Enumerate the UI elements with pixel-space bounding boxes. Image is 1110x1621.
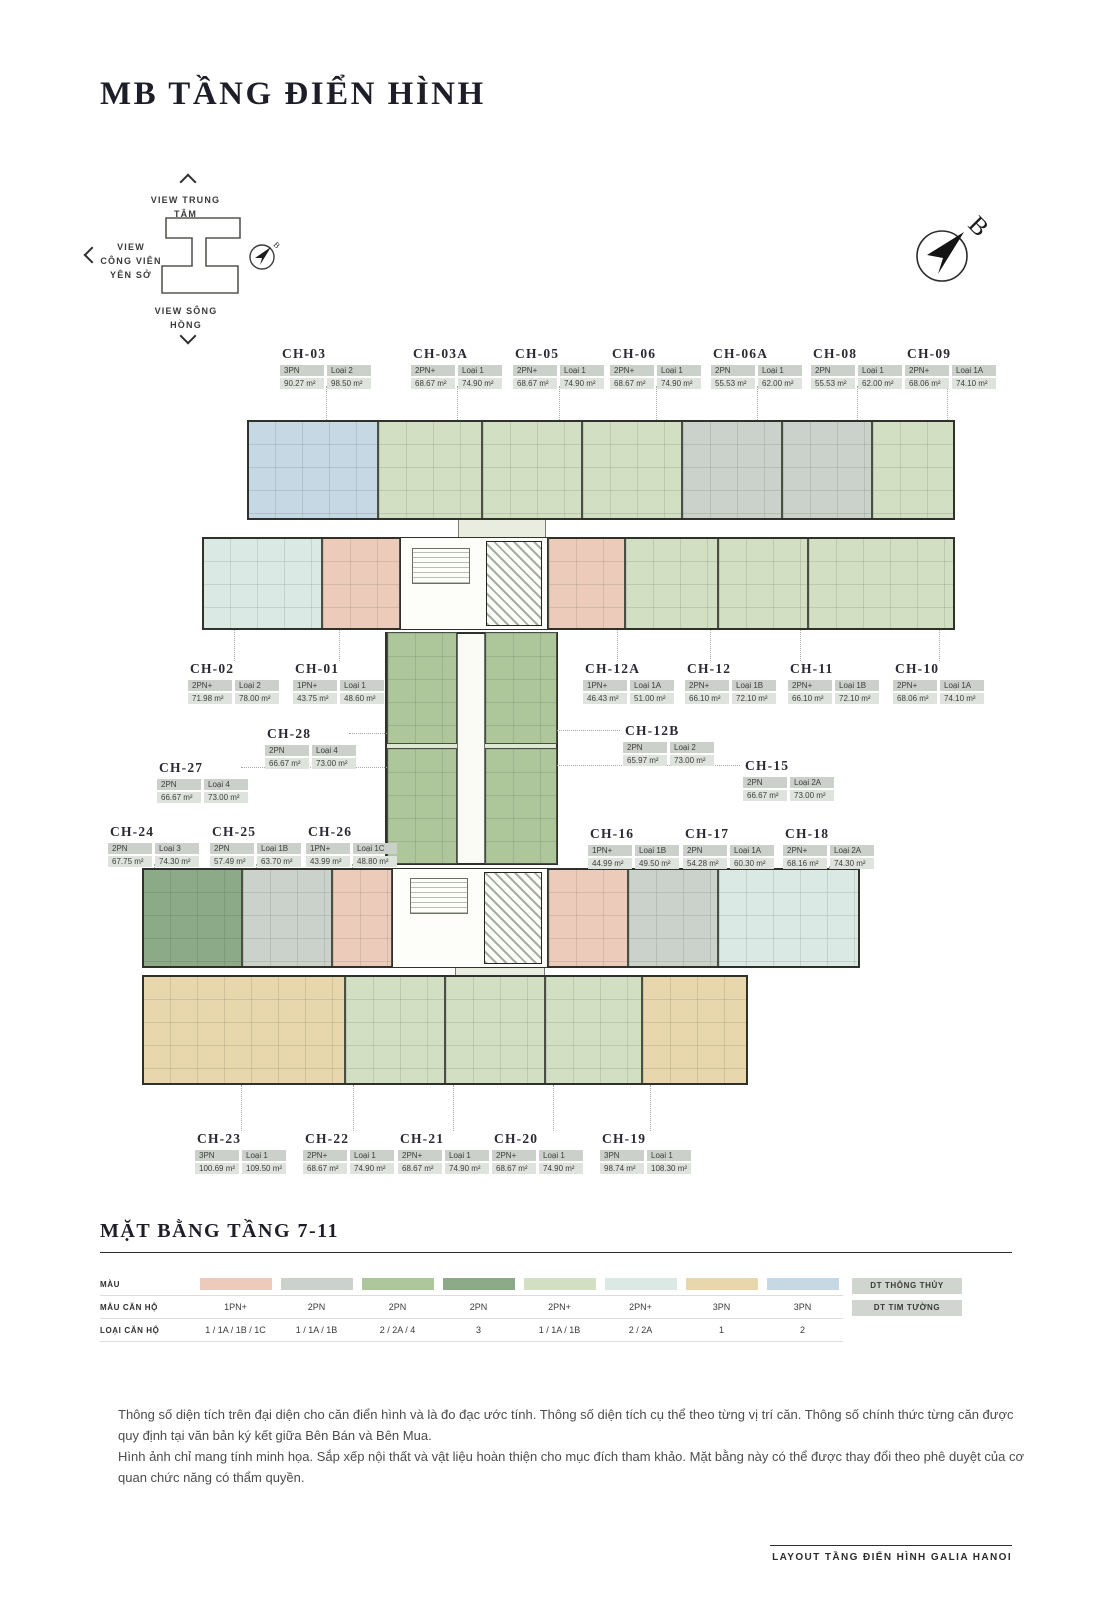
central-corridor — [457, 634, 485, 863]
unit-area-gross: 78.00 m² — [235, 693, 279, 704]
unit-id: CH-11 — [790, 661, 880, 677]
color-swatch-icon — [200, 1278, 272, 1290]
unit-area-gross: 48.60 m² — [340, 693, 384, 704]
unit-id: CH-03 — [282, 346, 372, 362]
unit-bedrooms: 2PN — [683, 845, 727, 856]
unit-info-table: 2PNLoại 367.75 m²74.30 m² — [108, 843, 200, 867]
unit-bedrooms: 2PN — [108, 843, 152, 854]
unit-label-CH-27: CH-272PNLoại 466.67 m²73.00 m² — [157, 760, 249, 803]
unit-label-CH-03A: CH-03A2PN+Loại 168.67 m²74.90 m² — [411, 346, 503, 389]
unit-type: Loại 1 — [758, 365, 802, 376]
unit-area-gross: 73.00 m² — [204, 792, 248, 803]
unit-id: CH-28 — [267, 726, 357, 742]
legend-row-label: MÀU — [100, 1280, 195, 1289]
leader-line — [656, 386, 657, 420]
unit-bedrooms: 2PN+ — [492, 1150, 536, 1161]
unit-label-CH-15: CH-152PNLoại 2A66.67 m²73.00 m² — [743, 758, 835, 801]
unit-info-table: 1PN+Loại 1C43.99 m²48.80 m² — [306, 843, 398, 867]
color-swatch-icon — [362, 1278, 434, 1290]
unit-id: CH-15 — [745, 758, 835, 774]
unit-id: CH-09 — [907, 346, 997, 362]
legend-loai-values: 1 / 1A / 1B — [276, 1325, 357, 1335]
unit-id: CH-10 — [895, 661, 985, 677]
unit-id: CH-24 — [110, 824, 200, 840]
unit-info-table: 2PNLoại 1A54.28 m²60.30 m² — [683, 845, 775, 869]
unit-id: CH-12B — [625, 723, 715, 739]
unit-bedrooms: 2PN — [210, 843, 254, 854]
unit-area-gross: 63.70 m² — [257, 856, 301, 867]
unit-area-clear: 68.16 m² — [783, 858, 827, 869]
unit-info-table: 2PN+Loại 168.67 m²74.90 m² — [492, 1150, 584, 1174]
unit-type: Loại 1 — [657, 365, 701, 376]
unit-info-table: 3PNLoại 198.74 m²108.30 m² — [600, 1150, 692, 1174]
legend-bedroom-type: 2PN+ — [600, 1302, 681, 1312]
leader-line — [617, 630, 618, 661]
unit-label-CH-06: CH-062PN+Loại 168.67 m²74.90 m² — [610, 346, 702, 389]
unit-id: CH-12A — [585, 661, 675, 677]
unit-type: Loại 1 — [340, 680, 384, 691]
unit-bedrooms: 2PN+ — [513, 365, 557, 376]
unit-area-gross: 74.10 m² — [940, 693, 984, 704]
unit-area-clear: 68.67 m² — [492, 1163, 536, 1174]
unit-type: Loại 3 — [155, 843, 199, 854]
unit-area-gross: 108.30 m² — [647, 1163, 691, 1174]
unit-id: CH-02 — [190, 661, 280, 677]
unit-label-CH-28: CH-282PNLoại 466.67 m²73.00 m² — [265, 726, 357, 769]
unit-label-CH-03: CH-033PNLoại 290.27 m²98.50 m² — [280, 346, 372, 389]
unit-type: Loại 1 — [445, 1150, 489, 1161]
unit-area-clear: 54.28 m² — [683, 858, 727, 869]
unit-info-table: 2PN+Loại 168.67 m²74.90 m² — [303, 1150, 395, 1174]
unit-area-gross: 73.00 m² — [670, 755, 714, 766]
unit-bedrooms: 1PN+ — [306, 843, 350, 854]
wing-outline — [142, 975, 748, 1085]
leader-line — [457, 386, 458, 420]
unit-id: CH-12 — [687, 661, 777, 677]
unit-id: CH-25 — [212, 824, 302, 840]
unit-info-table: 1PN+Loại 1B44.99 m²49.50 m² — [588, 845, 680, 869]
unit-label-CH-16: CH-161PN+Loại 1B44.99 m²49.50 m² — [588, 826, 680, 869]
footer-label: LAYOUT TẦNG ĐIỂN HÌNH GALIA HANOI — [640, 1552, 1012, 1563]
legend-title: MẶT BẰNG TẦNG 7-11 — [100, 1220, 1012, 1243]
unit-label-CH-17: CH-172PNLoại 1A54.28 m²60.30 m² — [683, 826, 775, 869]
unit-id: CH-08 — [813, 346, 903, 362]
legend-loai-values: 1 — [681, 1325, 762, 1335]
unit-area-gross: 72.10 m² — [732, 693, 776, 704]
unit-id: CH-05 — [515, 346, 605, 362]
unit-bedrooms: 1PN+ — [293, 680, 337, 691]
unit-label-CH-12: CH-122PN+Loại 1B66.10 m²72.10 m² — [685, 661, 777, 704]
unit-type: Loại 2 — [235, 680, 279, 691]
unit-info-table: 2PN+Loại 1A68.06 m²74.10 m² — [893, 680, 985, 704]
unit-bedrooms: 2PN+ — [411, 365, 455, 376]
unit-bedrooms: 2PN — [157, 779, 201, 790]
unit-area-clear: 46.43 m² — [583, 693, 627, 704]
leader-line — [800, 630, 801, 661]
unit-id: CH-21 — [400, 1131, 490, 1147]
unit-id: CH-16 — [590, 826, 680, 842]
unit-label-CH-11: CH-112PN+Loại 1B66.10 m²72.10 m² — [788, 661, 880, 704]
unit-area-gross: 72.10 m² — [835, 693, 879, 704]
unit-area-clear: 68.67 m² — [411, 378, 455, 389]
unit-bedrooms: 2PN+ — [610, 365, 654, 376]
unit-type: Loại 1 — [350, 1150, 394, 1161]
unit-id: CH-18 — [785, 826, 875, 842]
unit-label-CH-20: CH-202PN+Loại 168.67 m²74.90 m² — [492, 1131, 584, 1174]
leader-line — [559, 386, 560, 420]
legend-loai-values: 1 / 1A / 1B — [519, 1325, 600, 1335]
unit-type: Loại 1 — [560, 365, 604, 376]
unit-area-clear: 98.74 m² — [600, 1163, 644, 1174]
legend-row-color: MÀU — [100, 1273, 843, 1296]
unit-info-table: 3PNLoại 290.27 m²98.50 m² — [280, 365, 372, 389]
unit-id: CH-22 — [305, 1131, 395, 1147]
area-clear-badge: DT THÔNG THỦY — [852, 1278, 962, 1294]
unit-area-gross: 49.50 m² — [635, 858, 679, 869]
color-swatch-icon — [443, 1278, 515, 1290]
disclaimer-paragraph-2: Hình ảnh chỉ mang tính minh họa. Sắp xếp… — [118, 1446, 1026, 1488]
legend-swatch-cell — [762, 1278, 843, 1290]
legend-bedroom-type: 2PN+ — [519, 1302, 600, 1312]
unit-area-clear: 44.99 m² — [588, 858, 632, 869]
unit-area-gross: 74.90 m² — [560, 378, 604, 389]
unit-area-clear: 68.67 m² — [513, 378, 557, 389]
unit-type: Loại 1A — [630, 680, 674, 691]
unit-type: Loại 2 — [327, 365, 371, 376]
unit-area-clear: 68.67 m² — [610, 378, 654, 389]
unit-bedrooms: 2PN — [811, 365, 855, 376]
unit-info-table: 2PN+Loại 1B66.10 m²72.10 m² — [788, 680, 880, 704]
legend-swatch-cell — [438, 1278, 519, 1290]
legend-row-label: MẪU CĂN HỘ — [100, 1303, 195, 1312]
legend-loai-values: 2 / 2A / 4 — [357, 1325, 438, 1335]
unit-type: Loại 2A — [830, 845, 874, 856]
unit-id: CH-23 — [197, 1131, 287, 1147]
unit-area-clear: 100.69 m² — [195, 1163, 239, 1174]
legend-row-label: LOẠI CĂN HỘ — [100, 1326, 195, 1335]
unit-type: Loại 1A — [940, 680, 984, 691]
unit-label-CH-25: CH-252PNLoại 1B57.49 m²63.70 m² — [210, 824, 302, 867]
color-swatch-icon — [605, 1278, 677, 1290]
unit-block-CH-28 — [387, 632, 457, 744]
unit-area-clear: 90.27 m² — [280, 378, 324, 389]
unit-info-table: 2PNLoại 466.67 m²73.00 m² — [265, 745, 357, 769]
unit-type: Loại 1B — [732, 680, 776, 691]
unit-area-clear: 55.53 m² — [711, 378, 755, 389]
unit-info-table: 2PNLoại 1B57.49 m²63.70 m² — [210, 843, 302, 867]
leader-line — [453, 1085, 454, 1131]
legend-bedroom-type: 3PN — [681, 1302, 762, 1312]
color-swatch-icon — [524, 1278, 596, 1290]
color-swatch-icon — [767, 1278, 839, 1290]
unit-area-gross: 74.30 m² — [830, 858, 874, 869]
legend-bedroom-type: 1PN+ — [195, 1302, 276, 1312]
legend-swatch-cell — [276, 1278, 357, 1290]
unit-area-gross: 51.00 m² — [630, 693, 674, 704]
unit-id: CH-26 — [308, 824, 398, 840]
unit-bedrooms: 1PN+ — [588, 845, 632, 856]
unit-id: CH-06 — [612, 346, 702, 362]
unit-bedrooms: 2PN+ — [303, 1150, 347, 1161]
unit-info-table: 1PN+Loại 1A46.43 m²51.00 m² — [583, 680, 675, 704]
floor-plan: CH-033PNLoại 290.27 m²98.50 m²CH-03A2PN+… — [0, 0, 1110, 1621]
unit-area-gross: 62.00 m² — [758, 378, 802, 389]
unit-bedrooms: 3PN — [600, 1150, 644, 1161]
leader-line — [757, 386, 758, 420]
unit-type: Loại 1C — [353, 843, 397, 854]
unit-area-clear: 57.49 m² — [210, 856, 254, 867]
unit-label-CH-12A: CH-12A1PN+Loại 1A46.43 m²51.00 m² — [583, 661, 675, 704]
leader-line — [353, 1085, 354, 1131]
unit-info-table: 2PN+Loại 168.67 m²74.90 m² — [513, 365, 605, 389]
unit-area-gross: 74.90 m² — [350, 1163, 394, 1174]
leader-line — [553, 1085, 554, 1131]
unit-area-gross: 74.30 m² — [155, 856, 199, 867]
unit-area-gross: 73.00 m² — [312, 758, 356, 769]
unit-area-clear: 68.06 m² — [905, 378, 949, 389]
legend-row-loai: LOẠI CĂN HỘ 1 / 1A / 1B / 1C1 / 1A / 1B2… — [100, 1319, 843, 1342]
unit-bedrooms: 1PN+ — [583, 680, 627, 691]
unit-type: Loại 1B — [257, 843, 301, 854]
unit-label-CH-21: CH-212PN+Loại 168.67 m²74.90 m² — [398, 1131, 490, 1174]
unit-area-clear: 43.75 m² — [293, 693, 337, 704]
unit-id: CH-20 — [494, 1131, 584, 1147]
legend-swatch-cell — [600, 1278, 681, 1290]
unit-bedrooms: 2PN+ — [188, 680, 232, 691]
unit-label-CH-01: CH-011PN+Loại 143.75 m²48.60 m² — [293, 661, 385, 704]
unit-info-table: 2PN+Loại 1B66.10 m²72.10 m² — [685, 680, 777, 704]
leader-line — [947, 386, 948, 420]
unit-label-CH-22: CH-222PN+Loại 168.67 m²74.90 m² — [303, 1131, 395, 1174]
footer-rule — [770, 1545, 1012, 1546]
color-swatch-icon — [686, 1278, 758, 1290]
unit-bedrooms: 3PN — [195, 1150, 239, 1161]
unit-label-CH-12B: CH-12B2PNLoại 265.97 m²73.00 m² — [623, 723, 715, 766]
legend-bedroom-type: 3PN — [762, 1302, 843, 1312]
floor-plan-page: MB TẦNG ĐIỂN HÌNH VIEW TRUNG TÂM VIEW CÔ… — [0, 0, 1110, 1621]
legend-loai-values: 2 / 2A — [600, 1325, 681, 1335]
unit-label-CH-26: CH-261PN+Loại 1C43.99 m²48.80 m² — [306, 824, 398, 867]
leader-line — [326, 386, 327, 420]
unit-type: Loại 2A — [790, 777, 834, 788]
unit-bedrooms: 3PN — [280, 365, 324, 376]
unit-area-clear: 66.67 m² — [743, 790, 787, 801]
leader-line — [557, 730, 620, 731]
unit-label-CH-10: CH-102PN+Loại 1A68.06 m²74.10 m² — [893, 661, 985, 704]
unit-bedrooms: 2PN+ — [783, 845, 827, 856]
unit-block-CH-15 — [485, 748, 557, 864]
legend-row-bedrooms: MẪU CĂN HỘ 1PN+2PN2PN2PN2PN+2PN+3PN3PN — [100, 1296, 843, 1319]
unit-type: Loại 1 — [539, 1150, 583, 1161]
unit-id: CH-01 — [295, 661, 385, 677]
unit-info-table: 1PN+Loại 143.75 m²48.60 m² — [293, 680, 385, 704]
staircase — [412, 548, 470, 584]
disclaimer-notes: Thông số diện tích trên đại diện cho căn… — [118, 1404, 1026, 1488]
unit-area-clear: 55.53 m² — [811, 378, 855, 389]
unit-label-CH-08: CH-082PNLoại 155.53 m²62.00 m² — [811, 346, 903, 389]
elevator-shaft — [484, 872, 542, 964]
unit-info-table: 2PNLoại 155.53 m²62.00 m² — [711, 365, 803, 389]
unit-bedrooms: 2PN — [743, 777, 787, 788]
unit-info-table: 2PN+Loại 2A68.16 m²74.30 m² — [783, 845, 875, 869]
unit-label-CH-19: CH-193PNLoại 198.74 m²108.30 m² — [600, 1131, 692, 1174]
unit-area-clear: 65.97 m² — [623, 755, 667, 766]
unit-area-clear: 71.98 m² — [188, 693, 232, 704]
elevator-shaft — [486, 541, 542, 626]
color-swatch-icon — [281, 1278, 353, 1290]
unit-type: Loại 1A — [952, 365, 996, 376]
legend-bedroom-type: 2PN — [357, 1302, 438, 1312]
unit-area-gross: 73.00 m² — [790, 790, 834, 801]
unit-info-table: 2PNLoại 466.67 m²73.00 m² — [157, 779, 249, 803]
unit-area-clear: 68.06 m² — [893, 693, 937, 704]
unit-label-CH-23: CH-233PNLoại 1100.69 m²109.50 m² — [195, 1131, 287, 1174]
unit-block-CH-12B — [485, 632, 557, 744]
legend-loai-values: 3 — [438, 1325, 519, 1335]
leader-line — [857, 386, 858, 420]
unit-area-gross: 109.50 m² — [242, 1163, 286, 1174]
unit-label-CH-05: CH-052PN+Loại 168.67 m²74.90 m² — [513, 346, 605, 389]
unit-id: CH-19 — [602, 1131, 692, 1147]
unit-info-table: 2PN+Loại 271.98 m²78.00 m² — [188, 680, 280, 704]
unit-type: Loại 1B — [835, 680, 879, 691]
unit-area-clear: 68.67 m² — [303, 1163, 347, 1174]
unit-label-CH-02: CH-022PN+Loại 271.98 m²78.00 m² — [188, 661, 280, 704]
staircase — [410, 878, 468, 914]
legend-loai-values: 1 / 1A / 1B / 1C — [195, 1325, 276, 1335]
unit-area-gross: 48.80 m² — [353, 856, 397, 867]
leader-line — [234, 630, 235, 661]
unit-label-CH-24: CH-242PNLoại 367.75 m²74.30 m² — [108, 824, 200, 867]
unit-area-clear: 66.10 m² — [788, 693, 832, 704]
unit-label-CH-09: CH-092PN+Loại 1A68.06 m²74.10 m² — [905, 346, 997, 389]
area-gross-badge: DT TIM TƯỜNG — [852, 1300, 962, 1316]
unit-area-gross: 74.90 m² — [657, 378, 701, 389]
legend-swatch-cell — [519, 1278, 600, 1290]
unit-bedrooms: 2PN — [623, 742, 667, 753]
unit-info-table: 2PN+Loại 168.67 m²74.90 m² — [411, 365, 503, 389]
unit-area-gross: 60.30 m² — [730, 858, 774, 869]
unit-area-gross: 62.00 m² — [858, 378, 902, 389]
unit-bedrooms: 2PN — [265, 745, 309, 756]
unit-id: CH-03A — [413, 346, 503, 362]
unit-area-clear: 67.75 m² — [108, 856, 152, 867]
leader-line — [939, 630, 940, 661]
leader-line — [339, 630, 340, 661]
unit-label-CH-06A: CH-06A2PNLoại 155.53 m²62.00 m² — [711, 346, 803, 389]
unit-bedrooms: 2PN+ — [893, 680, 937, 691]
unit-info-table: 2PNLoại 265.97 m²73.00 m² — [623, 742, 715, 766]
unit-info-table: 2PN+Loại 168.67 m²74.90 m² — [398, 1150, 490, 1174]
unit-info-table: 3PNLoại 1100.69 m²109.50 m² — [195, 1150, 287, 1174]
unit-area-gross: 74.10 m² — [952, 378, 996, 389]
unit-bedrooms: 2PN+ — [788, 680, 832, 691]
unit-label-CH-18: CH-182PN+Loại 2A68.16 m²74.30 m² — [783, 826, 875, 869]
unit-area-gross: 74.90 m² — [445, 1163, 489, 1174]
unit-type: Loại 1 — [858, 365, 902, 376]
legend-loai-values: 2 — [762, 1325, 843, 1335]
legend-swatch-cell — [195, 1278, 276, 1290]
unit-area-clear: 43.99 m² — [306, 856, 350, 867]
legend-swatch-cell — [357, 1278, 438, 1290]
legend-grid: MÀU MẪU CĂN HỘ 1PN+2PN2PN2PN2PN+2PN+3PN3… — [100, 1273, 843, 1342]
unit-id: CH-17 — [685, 826, 775, 842]
unit-bedrooms: 2PN+ — [398, 1150, 442, 1161]
unit-area-clear: 66.10 m² — [685, 693, 729, 704]
unit-type: Loại 2 — [670, 742, 714, 753]
unit-info-table: 2PNLoại 155.53 m²62.00 m² — [811, 365, 903, 389]
wing-outline — [202, 537, 955, 630]
unit-info-table: 2PN+Loại 1A68.06 m²74.10 m² — [905, 365, 997, 389]
wing-outline — [247, 420, 955, 520]
unit-id: CH-06A — [713, 346, 803, 362]
unit-bedrooms: 2PN — [711, 365, 755, 376]
unit-area-gross: 98.50 m² — [327, 378, 371, 389]
legend-bedroom-type: 2PN — [276, 1302, 357, 1312]
corridor-link — [458, 518, 546, 539]
unit-area-gross: 74.90 m² — [458, 378, 502, 389]
leader-line — [650, 1085, 651, 1131]
unit-area-clear: 66.67 m² — [265, 758, 309, 769]
unit-bedrooms: 2PN+ — [685, 680, 729, 691]
unit-type: Loại 4 — [204, 779, 248, 790]
unit-type: Loại 1 — [242, 1150, 286, 1161]
leader-line — [241, 1085, 242, 1131]
unit-type: Loại 4 — [312, 745, 356, 756]
unit-bedrooms: 2PN+ — [905, 365, 949, 376]
leader-line — [710, 630, 711, 661]
unit-type: Loại 1 — [458, 365, 502, 376]
legend-rule — [100, 1252, 1012, 1253]
unit-info-table: 2PNLoại 2A66.67 m²73.00 m² — [743, 777, 835, 801]
disclaimer-paragraph-1: Thông số diện tích trên đại diện cho căn… — [118, 1404, 1026, 1446]
unit-area-clear: 66.67 m² — [157, 792, 201, 803]
unit-area-gross: 74.90 m² — [539, 1163, 583, 1174]
legend-bedroom-type: 2PN — [438, 1302, 519, 1312]
legend-swatch-cell — [681, 1278, 762, 1290]
unit-id: CH-27 — [159, 760, 249, 776]
unit-type: Loại 1B — [635, 845, 679, 856]
unit-area-clear: 68.67 m² — [398, 1163, 442, 1174]
unit-info-table: 2PN+Loại 168.67 m²74.90 m² — [610, 365, 702, 389]
unit-type: Loại 1 — [647, 1150, 691, 1161]
unit-type: Loại 1A — [730, 845, 774, 856]
